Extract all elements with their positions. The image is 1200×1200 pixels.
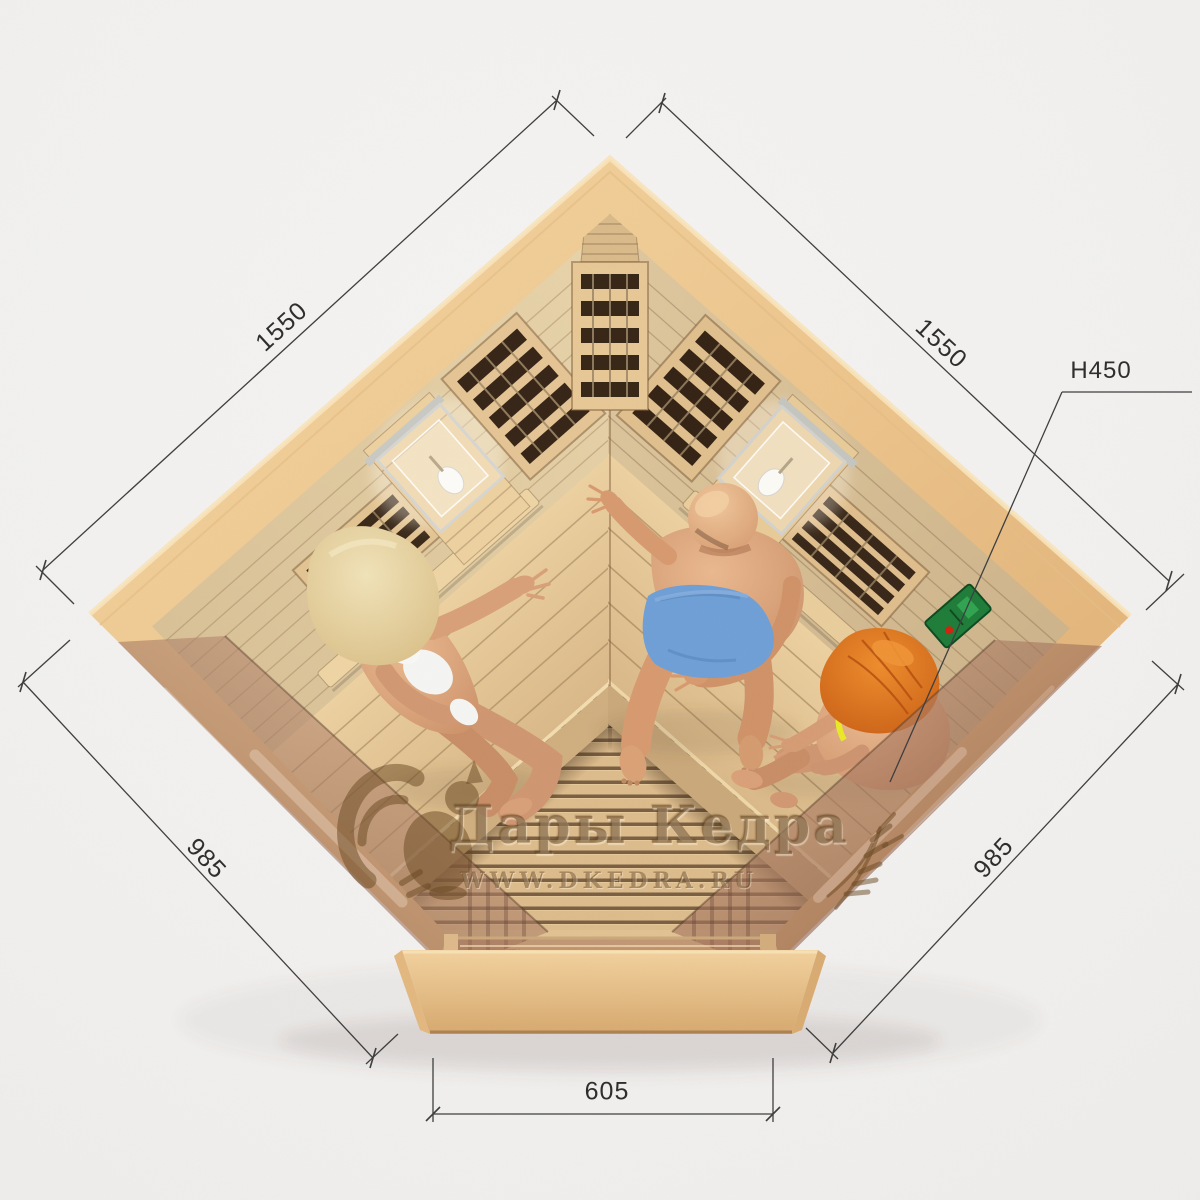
sauna-top-view-render: 1550 1550 H450 985 985 605 Дары Кедра WW…: [0, 0, 1200, 1200]
dim-line-top-right: [662, 103, 1169, 581]
watermark-brand: Дары Кедра: [448, 800, 850, 852]
dim-line-bottom-right: [833, 684, 1178, 1053]
dim-label-height: H450: [1070, 359, 1131, 383]
dimension-lines: [0, 0, 1200, 1200]
dim-label-front: 605: [585, 1080, 630, 1105]
watermark-website: WWW.DKEDRA.RU: [460, 870, 758, 892]
dim-line-top-left: [43, 100, 557, 570]
